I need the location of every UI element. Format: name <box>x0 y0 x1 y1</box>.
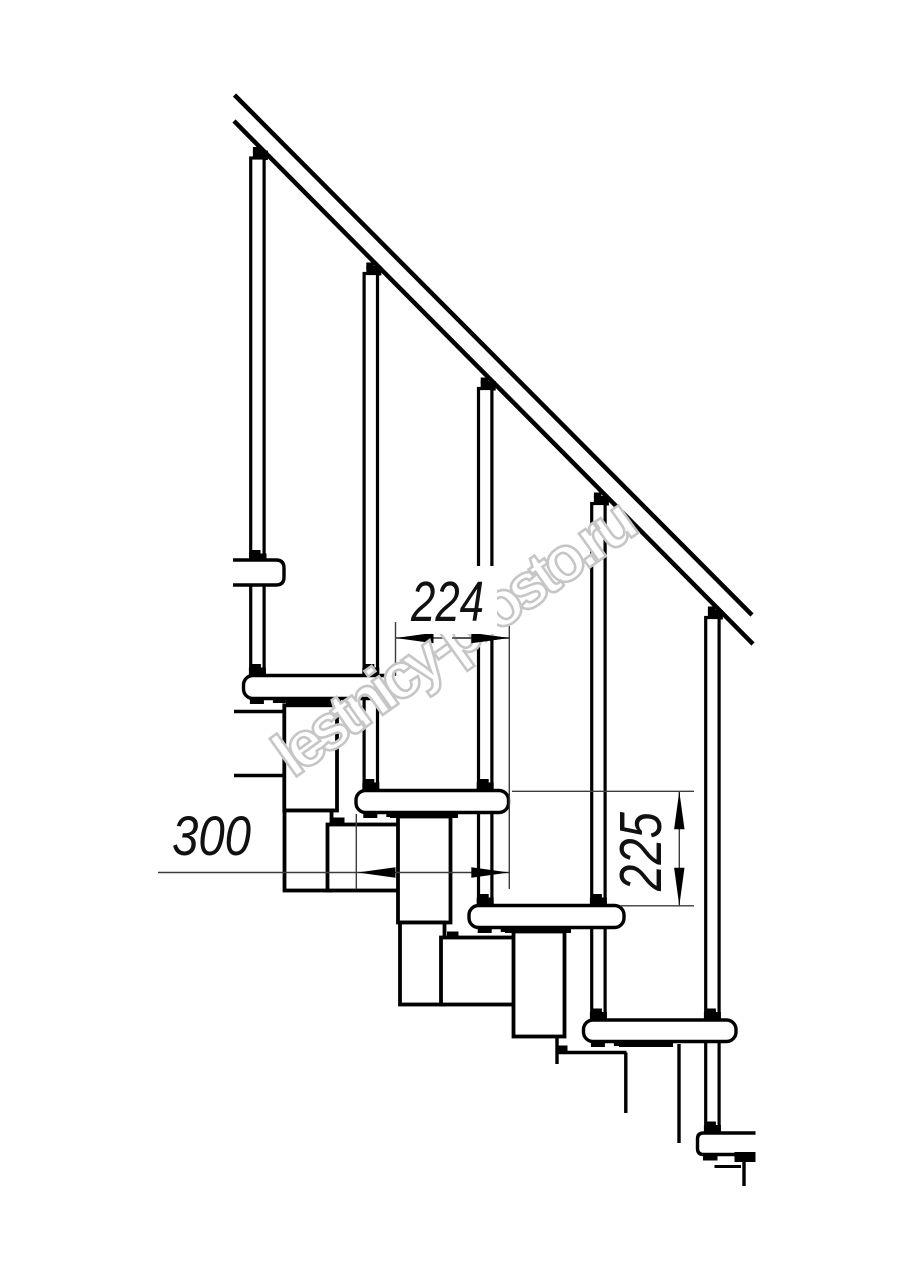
svg-text:225: 225 <box>608 812 674 892</box>
svg-text:300: 300 <box>172 804 251 867</box>
svg-text:224: 224 <box>410 570 484 634</box>
